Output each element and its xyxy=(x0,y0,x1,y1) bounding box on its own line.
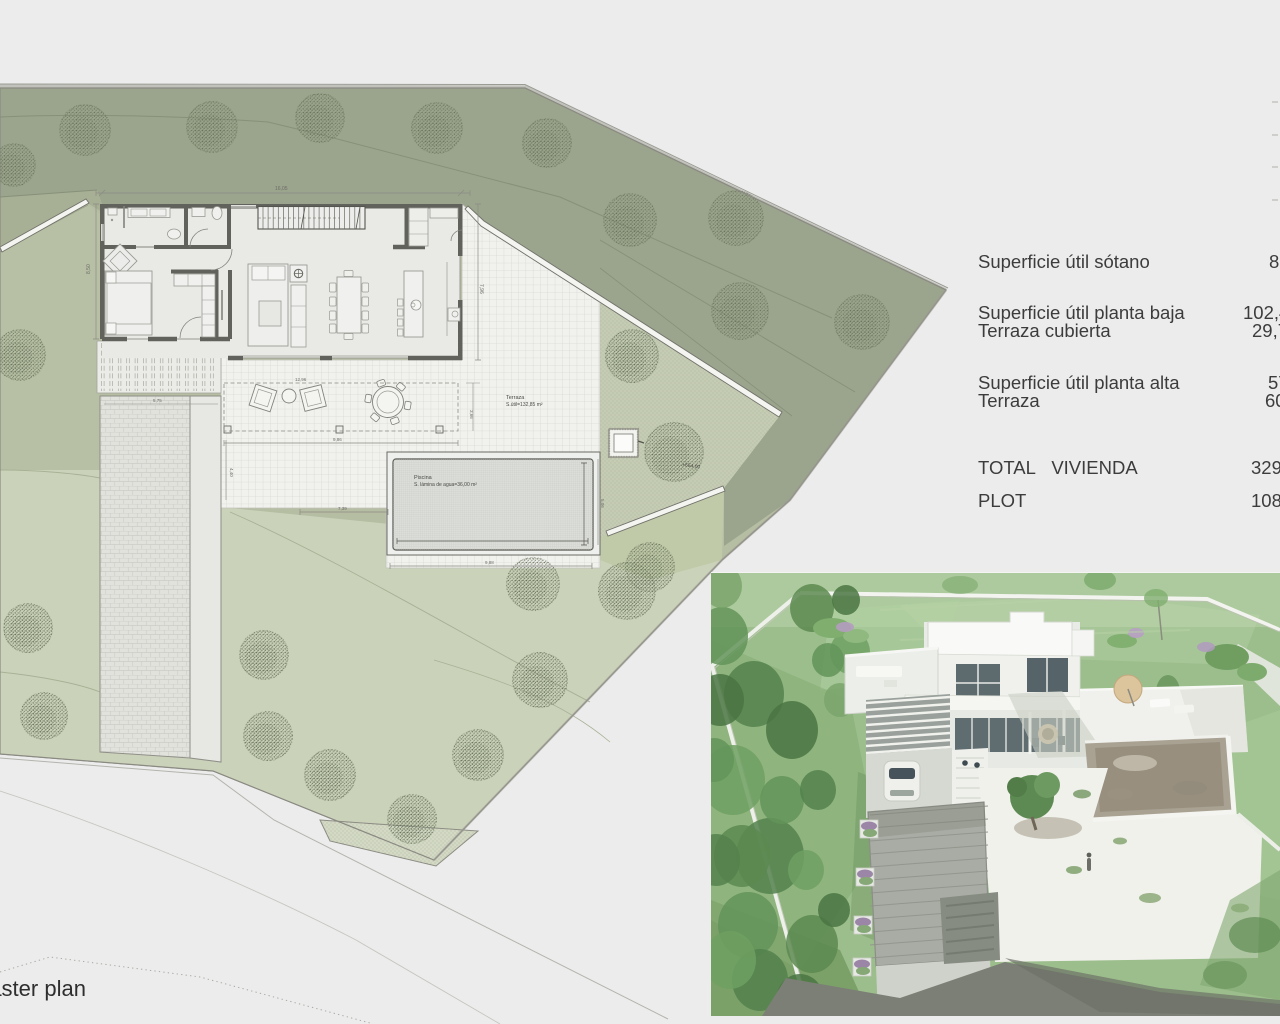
svg-text:Terraza: Terraza xyxy=(978,390,1040,411)
svg-text:7,39: 7,39 xyxy=(338,506,347,511)
svg-text:1080,00: 1080,00 xyxy=(1251,490,1280,511)
svg-text:4,40: 4,40 xyxy=(229,468,234,477)
svg-text:3,66: 3,66 xyxy=(469,410,474,419)
svg-text:Terraza: Terraza xyxy=(506,395,525,401)
svg-text:Superficie útil sótano: Superficie útil sótano xyxy=(978,251,1150,272)
svg-text:60,20: 60,20 xyxy=(1265,390,1280,411)
svg-text:Terraza cubierta: Terraza cubierta xyxy=(978,320,1111,341)
svg-text:9,86: 9,86 xyxy=(333,437,342,442)
svg-text:16,05: 16,05 xyxy=(275,186,288,192)
svg-text:S. lámina de agua=36,00 m²: S. lámina de agua=36,00 m² xyxy=(414,482,477,488)
svg-text:9,88: 9,88 xyxy=(485,560,494,565)
svg-text:5,06: 5,06 xyxy=(600,499,605,508)
svg-text:87,50: 87,50 xyxy=(1269,251,1280,272)
svg-text:S.útil=132,85 m²: S.útil=132,85 m² xyxy=(506,402,543,408)
svg-text:TOTAL VIVIENDA: TOTAL VIVIENDA xyxy=(978,457,1138,478)
svg-text:PLOT: PLOT xyxy=(978,490,1026,511)
svg-text:29,70: 29,70 xyxy=(1252,320,1280,341)
svg-text:12,96: 12,96 xyxy=(295,377,307,382)
svg-text:8,50: 8,50 xyxy=(86,264,92,274)
svg-text:master plan: master plan xyxy=(0,976,86,1001)
svg-text:Piscina: Piscina xyxy=(414,475,433,481)
svg-text:7,96: 7,96 xyxy=(478,284,484,294)
svg-text:5,75: 5,75 xyxy=(153,398,162,403)
svg-text:329,50: 329,50 xyxy=(1251,457,1280,478)
